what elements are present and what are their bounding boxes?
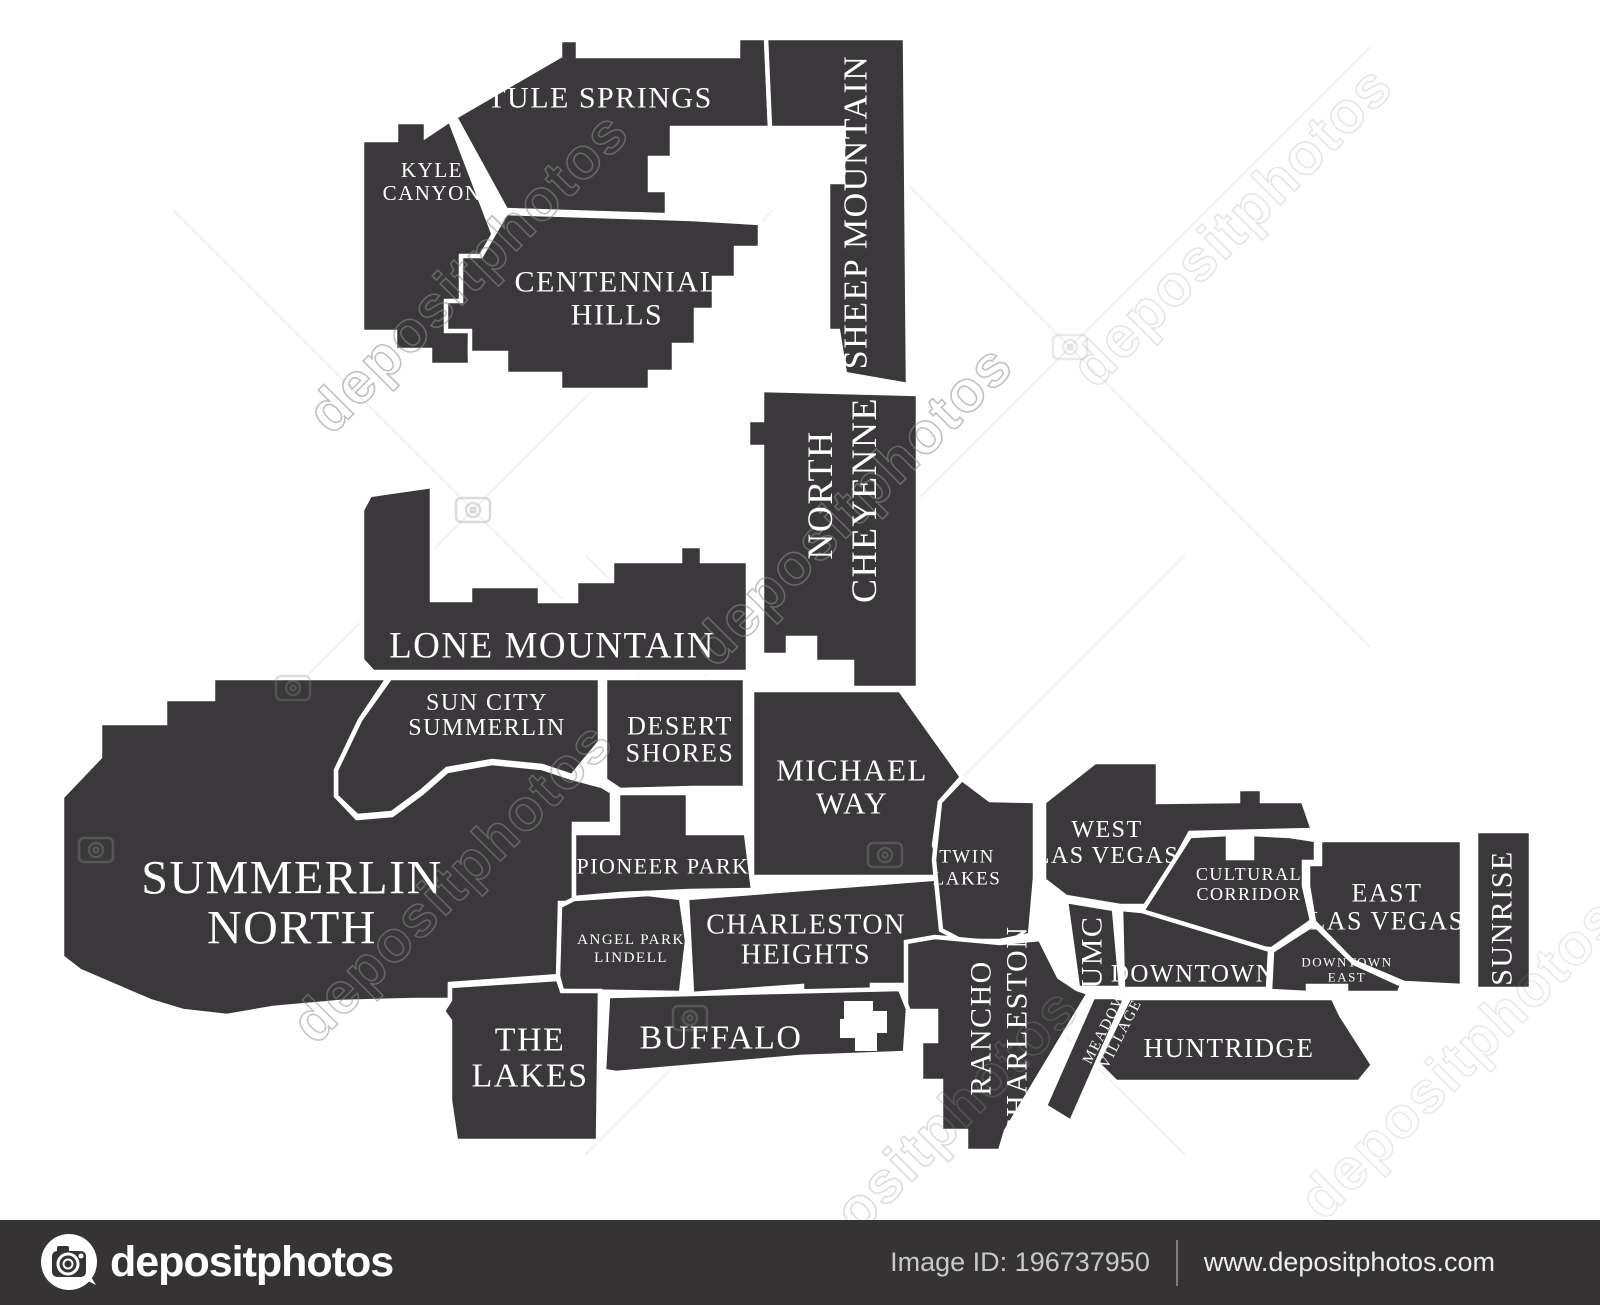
- label-north-cheyenne: CHEYENNE: [844, 397, 884, 603]
- depositphotos-camera-icon: [40, 1233, 100, 1293]
- label-sunrise: SUNRISE: [1486, 850, 1519, 986]
- label-downtown-east: DOWNTOWN: [1301, 955, 1392, 970]
- label-kyle-canyon: CANYON: [383, 181, 482, 205]
- label-downtown: DOWNTOWN: [1111, 961, 1275, 988]
- label-summerlin-north: NORTH: [207, 902, 377, 955]
- label-desert-shores: SHORES: [626, 739, 735, 768]
- label-centennial-hills: HILLS: [571, 299, 664, 332]
- label-sheep-mountain: SHEEP MOUNTAIN: [838, 55, 875, 370]
- label-pioneer-park: PIONEER PARK: [576, 854, 749, 879]
- label-umc: UMC: [1076, 916, 1109, 989]
- label-west-las-vegas: LAS VEGAS: [1035, 843, 1179, 869]
- watermark-text: depositphotos: [1059, 53, 1406, 400]
- label-west-las-vegas: WEST: [1071, 817, 1142, 843]
- label-downtown-east: EAST: [1328, 970, 1367, 985]
- label-rancho-charleston: RANCHO: [965, 960, 998, 1096]
- label-the-lakes: LAKES: [471, 1058, 588, 1095]
- label-east-las-vegas: EAST: [1352, 879, 1423, 908]
- watermark-footer-bar: depositphotos Image ID: 196737950 www.de…: [0, 1220, 1600, 1305]
- label-cultural-corridor: CORRIDOR: [1196, 884, 1301, 904]
- label-michael-way: MICHAEL: [776, 753, 928, 788]
- label-sun-city-summerlin: SUMMERLIN: [408, 715, 566, 741]
- label-summerlin-north: SUMMERLIN: [141, 852, 443, 905]
- map-canvas: depositphotosdepositphotosdepositphotosd…: [0, 0, 1600, 1305]
- depositphotos-logo: depositphotos: [40, 1233, 393, 1293]
- label-rancho-charleston: CHARLESTON: [1001, 926, 1034, 1139]
- website-url-text: www.depositphotos.com: [1204, 1247, 1495, 1278]
- label-buffalo: BUFFALO: [640, 1020, 803, 1057]
- label-lone-mountain: LONE MOUNTAIN: [389, 626, 715, 667]
- label-the-lakes: THE: [495, 1022, 566, 1059]
- label-angel-park-lindell: ANGEL PARK: [577, 932, 685, 948]
- stock-image-page: depositphotosdepositphotosdepositphotosd…: [0, 0, 1600, 1305]
- label-tule-springs: TULE SPRINGS: [487, 82, 713, 115]
- label-angel-park-lindell: LINDELL: [594, 950, 668, 966]
- footer-divider: [1176, 1240, 1178, 1286]
- label-charleston-heights: CHARLESTON: [706, 910, 906, 941]
- label-north-cheyenne: NORTH: [800, 430, 840, 559]
- label-sun-city-summerlin: SUN CITY: [426, 690, 548, 716]
- label-east-las-vegas: LAS VEGAS: [1309, 907, 1464, 936]
- footer-credits: Image ID: 196737950 www.depositphotos.co…: [890, 1240, 1495, 1286]
- label-huntridge: HUNTRIDGE: [1144, 1033, 1315, 1063]
- label-charleston-heights: HEIGHTS: [741, 940, 871, 971]
- label-centennial-hills: CENTENNIAL: [515, 266, 720, 299]
- logo-wordmark: depositphotos: [110, 1241, 393, 1284]
- label-kyle-canyon: KYLE: [401, 158, 463, 182]
- label-cultural-corridor: CULTURAL: [1196, 864, 1302, 884]
- image-id-text: Image ID: 196737950: [890, 1247, 1150, 1278]
- label-twin-lakes: LAKES: [933, 869, 1002, 890]
- label-michael-way: WAY: [816, 786, 888, 821]
- las-vegas-neighborhood-map: depositphotosdepositphotosdepositphotosd…: [0, 0, 1600, 1305]
- label-twin-lakes: TWIN: [939, 847, 995, 868]
- label-desert-shores: DESERT: [627, 712, 733, 741]
